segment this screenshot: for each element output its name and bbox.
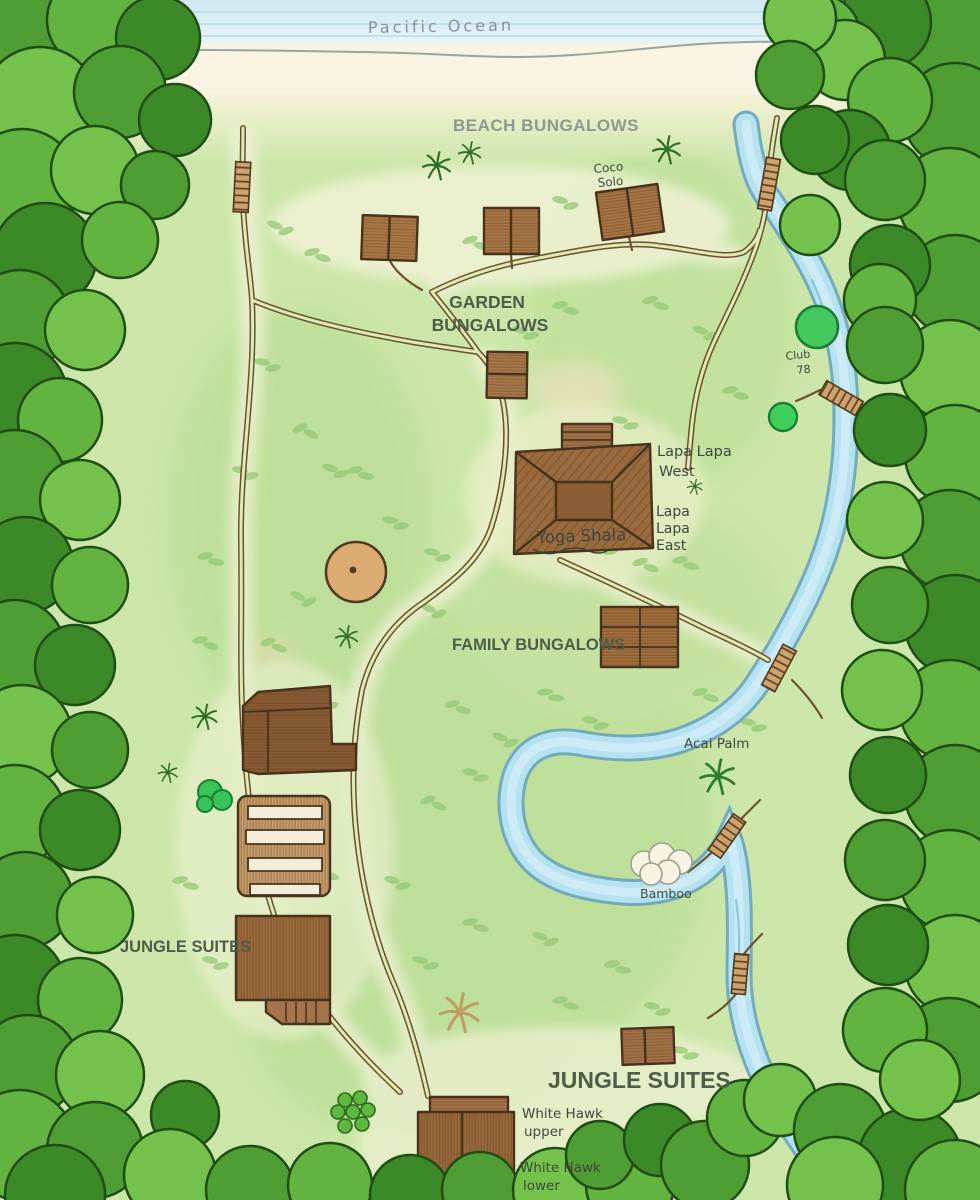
jungle-suites-south-label: JUNGLE SUITES: [548, 1067, 731, 1093]
garden-bungalows-label-line2: BUNGALOWS: [432, 315, 549, 335]
border-tree: [40, 790, 120, 870]
building-beach-bungalow-1: [361, 215, 418, 261]
border-tree: [45, 290, 125, 370]
jungle-suites-west-label: JUNGLE SUITES: [120, 938, 251, 956]
building-beach-bungalow-2: [484, 208, 539, 254]
border-tree: [52, 712, 128, 788]
border-tree: [852, 567, 928, 643]
lapa-lapa-east-label-line1: Lapa: [656, 504, 690, 520]
border-tree: [845, 820, 925, 900]
bamboo-label: Bamboo: [640, 886, 692, 901]
border-tree: [848, 905, 928, 985]
bridge-south: [731, 953, 748, 994]
lapa-lapa-east-label-line2: Lapa: [656, 521, 690, 537]
border-tree: [845, 140, 925, 220]
family-bungalows-label: FAMILY BUNGALOWS: [452, 636, 625, 654]
resort-map: Pacific Ocean BEACH BUNGALOWS Coco Solo …: [0, 0, 980, 1200]
garden-bungalows-label-line1: GARDEN: [449, 292, 525, 312]
white-hawk-lower-label-line2: lower: [523, 1178, 560, 1194]
acai-palm-label: Acai Palm: [684, 736, 749, 752]
border-tree: [139, 84, 211, 156]
border-tree: [566, 1121, 634, 1189]
border-tree: [850, 737, 926, 813]
lapa-lapa-east-label-line3: East: [656, 538, 687, 554]
border-tree: [52, 547, 128, 623]
white-hawk-lower-label-line1: White Hawk: [520, 1160, 601, 1176]
club78-label-line1: Club: [785, 347, 811, 363]
white-hawk-upper-label-line2: upper: [524, 1124, 564, 1140]
building-garden-bungalow: [487, 352, 528, 399]
white-hawk-upper-label-line1: White Hawk: [522, 1106, 603, 1122]
border-tree: [847, 482, 923, 558]
round-tree-large: [796, 306, 838, 348]
fire-circle-center: [350, 567, 357, 574]
round-tree-small: [769, 403, 797, 431]
bridge-post-west: [233, 162, 251, 213]
border-tree: [780, 195, 840, 255]
building-yoga-shala-annex: [562, 424, 612, 449]
building-jungle-suite-small: [621, 1027, 674, 1065]
building-jungle-suite-2: [238, 796, 330, 896]
ocean-label: Pacific Ocean: [368, 15, 514, 37]
border-tree: [854, 394, 926, 466]
building-beach-bungalow-3: [596, 184, 664, 240]
border-tree: [756, 41, 824, 109]
fire-circle: [326, 542, 386, 602]
yoga-shala-label: Yoga Shala: [535, 525, 626, 547]
border-tree: [781, 106, 849, 174]
beach-bungalows-label: BEACH BUNGALOWS: [453, 116, 639, 135]
border-tree: [82, 202, 158, 278]
border-tree: [880, 1040, 960, 1120]
border-tree: [842, 650, 922, 730]
map-illustration: Pacific Ocean BEACH BUNGALOWS Coco Solo …: [0, 0, 980, 1200]
border-tree: [847, 307, 923, 383]
club78-label-line2: 78: [796, 363, 811, 377]
lapa-lapa-west-label-line2: West: [659, 464, 695, 480]
coco-solo-label-line2: Solo: [597, 174, 624, 190]
lapa-lapa-west-label-line1: Lapa Lapa: [657, 444, 732, 460]
